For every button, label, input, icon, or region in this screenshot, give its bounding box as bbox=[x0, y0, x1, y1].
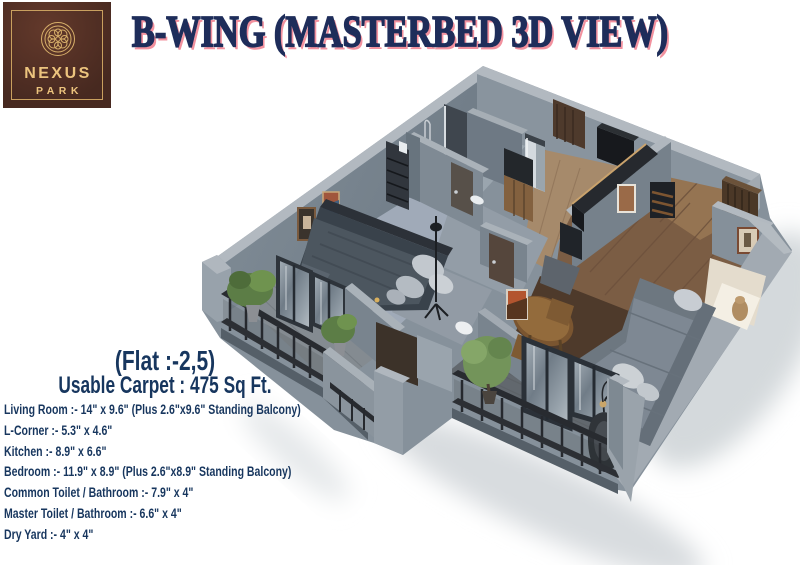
svg-text:PARK: PARK bbox=[36, 85, 83, 97]
svg-text:NEXUS: NEXUS bbox=[24, 65, 92, 82]
